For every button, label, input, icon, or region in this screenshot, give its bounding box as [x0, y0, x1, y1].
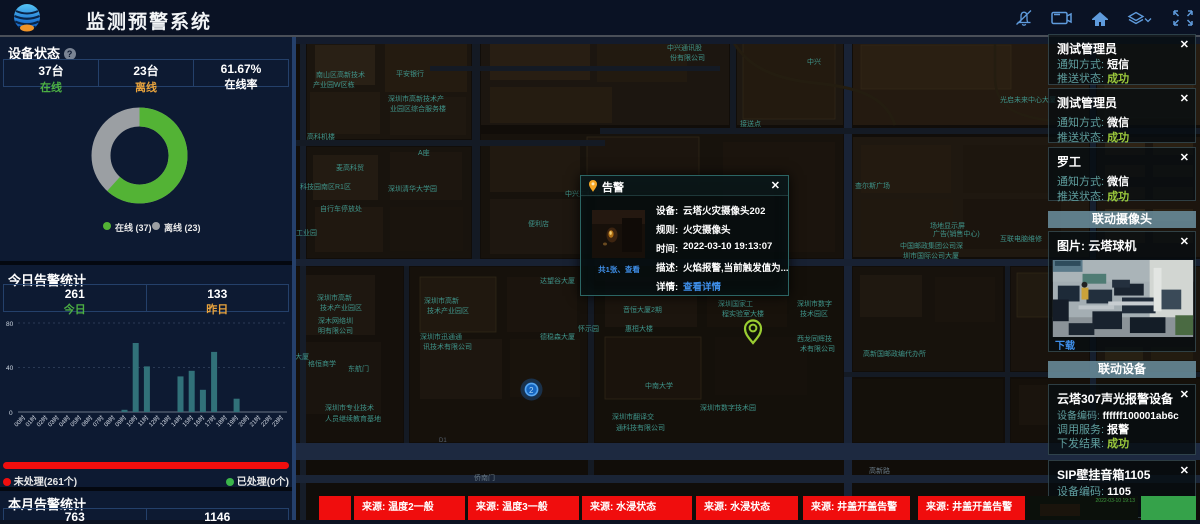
svg-text:大厦: 大厦 — [295, 352, 309, 361]
svg-text:圳市国际公司大厦: 圳市国际公司大厦 — [903, 251, 959, 260]
svg-text:深木网络圳: 深木网络圳 — [318, 316, 353, 325]
svg-text:深圳市翻译交: 深圳市翻译交 — [612, 412, 654, 421]
svg-text:15时: 15时 — [180, 414, 195, 429]
svg-text:0: 0 — [9, 410, 13, 417]
svg-text:深圳国家工: 深圳国家工 — [718, 299, 753, 308]
svg-text:东航门: 东航门 — [348, 364, 369, 373]
svg-text:01时: 01时 — [24, 414, 39, 429]
svg-text:09时: 09时 — [113, 414, 128, 429]
svg-text:德稳森大厦: 德稳森大厦 — [540, 332, 575, 341]
svg-text:西龙同辉技: 西龙同辉技 — [797, 334, 832, 343]
svg-text:高科机楼: 高科机楼 — [307, 132, 335, 141]
svg-text:术有限公司: 术有限公司 — [800, 344, 835, 353]
svg-text:份有限公司: 份有限公司 — [670, 53, 705, 62]
svg-text:中兴: 中兴 — [807, 57, 821, 66]
svg-text:中国邮政集团公司深: 中国邮政集团公司深 — [900, 241, 963, 250]
svg-text:06时: 06时 — [80, 414, 95, 429]
svg-text:互联电脑维修: 互联电脑维修 — [1000, 234, 1042, 243]
svg-text:中南大学: 中南大学 — [645, 381, 673, 390]
svg-text:19时: 19时 — [225, 414, 240, 429]
svg-text:深圳清华大学园: 深圳清华大学园 — [388, 184, 437, 193]
svg-text:23时: 23时 — [270, 414, 285, 429]
svg-text:高新国邮政编代办所: 高新国邮政编代办所 — [863, 349, 926, 358]
svg-text:技术产业园区: 技术产业园区 — [320, 303, 362, 312]
svg-text:深圳市迅通通: 深圳市迅通通 — [420, 332, 462, 341]
svg-text:格恒商学: 格恒商学 — [308, 359, 336, 368]
svg-text:高新路: 高新路 — [869, 466, 890, 475]
svg-text:侨南门: 侨南门 — [474, 473, 495, 482]
svg-text:03时: 03时 — [46, 414, 61, 429]
svg-text:深圳市专业技术: 深圳市专业技术 — [325, 403, 374, 412]
svg-text:讯技术有限公司: 讯技术有限公司 — [423, 342, 472, 351]
svg-text:13时: 13时 — [158, 414, 173, 429]
svg-text:技术园区: 技术园区 — [800, 309, 828, 318]
svg-text:程实验室大楼: 程实验室大楼 — [722, 309, 764, 318]
svg-text:深圳市高新: 深圳市高新 — [424, 296, 459, 305]
svg-text:80: 80 — [6, 321, 14, 328]
svg-text:A座: A座 — [418, 148, 430, 157]
svg-text:深圳市高新技术产: 深圳市高新技术产 — [388, 94, 444, 103]
svg-text:深圳市高新: 深圳市高新 — [317, 293, 352, 302]
svg-text:18时: 18时 — [214, 414, 229, 429]
svg-text:工业园: 工业园 — [296, 228, 317, 237]
svg-text:惠桓大楼: 惠桓大楼 — [625, 324, 653, 333]
svg-text:广告(销售中心): 广告(销售中心) — [933, 229, 980, 238]
svg-text:业园区综合服务楼: 业园区综合服务楼 — [390, 104, 446, 113]
svg-text:10时: 10时 — [124, 414, 139, 429]
svg-text:16时: 16时 — [192, 414, 207, 429]
svg-text:深圳市数字: 深圳市数字 — [797, 299, 832, 308]
svg-text:自行车停放处: 自行车停放处 — [320, 204, 362, 213]
svg-text:通科技有限公司: 通科技有限公司 — [616, 423, 665, 432]
svg-text:深圳市数字技术园: 深圳市数字技术园 — [700, 403, 756, 412]
svg-text:麦高科贸: 麦高科贸 — [336, 163, 364, 172]
svg-text:02时: 02时 — [35, 414, 50, 429]
svg-text:11时: 11时 — [136, 414, 150, 428]
svg-text:中兴通讯股: 中兴通讯股 — [667, 43, 702, 52]
svg-text:平安银行: 平安银行 — [396, 69, 424, 78]
svg-text:D1: D1 — [439, 438, 447, 444]
svg-text:17时: 17时 — [203, 414, 218, 429]
svg-text:明有限公司: 明有限公司 — [318, 326, 353, 335]
svg-text:04时: 04时 — [57, 414, 72, 429]
svg-text:人员继续教育基地: 人员继续教育基地 — [325, 414, 381, 423]
svg-text:00时: 00时 — [12, 414, 27, 429]
svg-text:40: 40 — [6, 365, 14, 372]
svg-text:08时: 08时 — [102, 414, 117, 429]
svg-text:便利店: 便利店 — [528, 219, 549, 228]
svg-text:南山区高新技术: 南山区高新技术 — [316, 70, 365, 79]
svg-text:怀示园: 怀示园 — [578, 324, 599, 333]
svg-text:接送点: 接送点 — [740, 119, 761, 128]
svg-text:音恒大厦2期: 音恒大厦2期 — [623, 305, 662, 314]
svg-text:产业园W区栋: 产业园W区栋 — [313, 80, 355, 89]
svg-text:2: 2 — [529, 386, 534, 395]
svg-text:05时: 05时 — [68, 414, 83, 429]
svg-text:20时: 20时 — [237, 414, 252, 429]
svg-text:22时: 22时 — [259, 414, 274, 429]
svg-text:14时: 14时 — [169, 414, 184, 429]
svg-text:场地显示屏: 场地显示屏 — [930, 221, 965, 230]
svg-text:科技园南区R1区: 科技园南区R1区 — [300, 182, 351, 191]
svg-text:07时: 07时 — [91, 414, 106, 429]
svg-text:技术产业园区: 技术产业园区 — [427, 306, 469, 315]
svg-text:12时: 12时 — [147, 414, 162, 429]
svg-text:21时: 21时 — [248, 414, 263, 429]
svg-text:达望谷大厦: 达望谷大厦 — [540, 276, 575, 285]
svg-text:查尔斯广场: 查尔斯广场 — [855, 181, 890, 190]
